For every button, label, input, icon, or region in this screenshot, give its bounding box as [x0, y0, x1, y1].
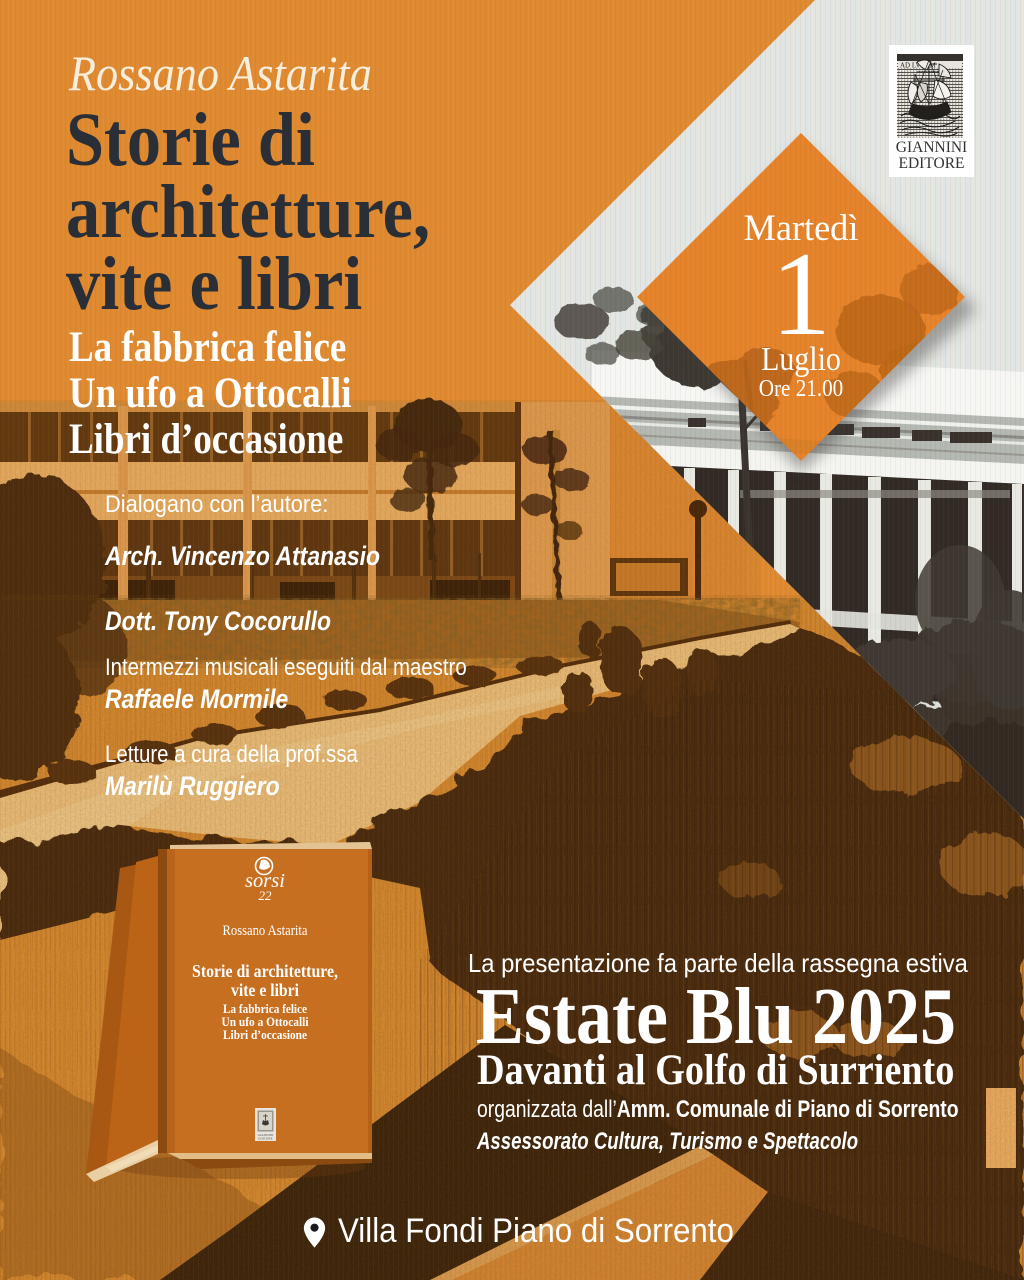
svg-text:vite e libri: vite e libri: [231, 980, 299, 1000]
svg-text:Storie di architetture,: Storie di architetture,: [192, 961, 338, 981]
svg-text:EDITORE: EDITORE: [258, 1137, 272, 1141]
svg-text:Libri d’occasione: Libri d’occasione: [223, 1027, 307, 1042]
svg-text:Rossano Astarita: Rossano Astarita: [223, 923, 308, 939]
svg-text:22: 22: [259, 888, 273, 903]
